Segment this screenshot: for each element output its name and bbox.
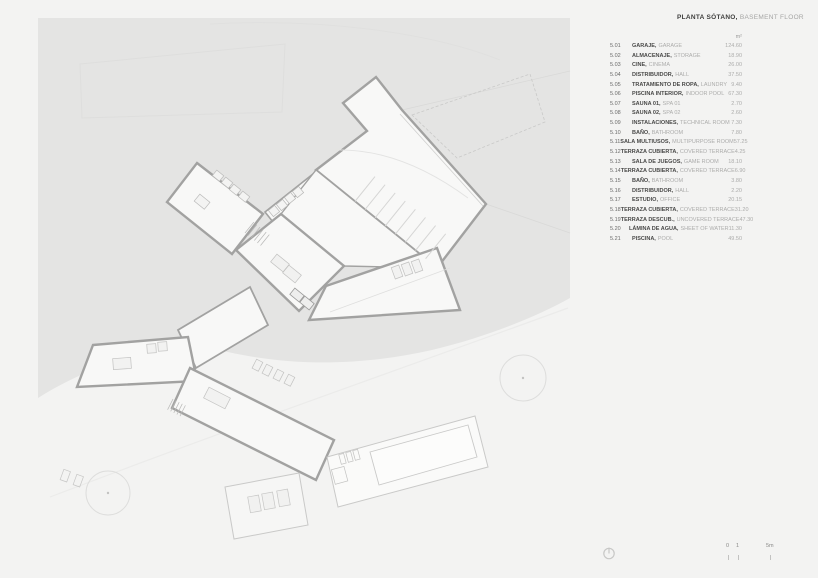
legend-row: 5.09 INSTALACIONES, TECHNICAL ROOM 7.30 <box>610 119 742 129</box>
legend-row: 5.21 PISCINA, POOL 49.50 <box>610 235 742 245</box>
legend-row: 5.01 GARAJE, GARAGE 124.60 <box>610 42 742 52</box>
room-name-en: POOL <box>658 235 673 245</box>
games-wing <box>172 368 334 480</box>
room-code: 5.01 <box>610 42 632 52</box>
room-area: 37.50 <box>728 71 742 81</box>
room-name-es: TRATAMIENTO DE ROPA, <box>632 81 699 91</box>
legend-row: 5.11 SALA MULTIUSOS, MULTIPURPOSE ROOM 5… <box>610 138 742 148</box>
legend-row: 5.10 BAÑO, BATHROOM 7.80 <box>610 129 742 139</box>
room-code: 5.07 <box>610 100 632 110</box>
tree-icon <box>500 355 546 401</box>
room-name-es: DISTRIBUIDOR, <box>632 71 673 81</box>
legend-row: 5.14 TERRAZA CUBIERTA, COVERED TERRACE 6… <box>610 167 742 177</box>
scale-label-1: 1 <box>736 543 739 549</box>
room-name-en: GARAGE <box>658 42 682 52</box>
room-area: 18.90 <box>728 52 742 62</box>
room-name-es: TERRAZA CUBIERTA, <box>621 148 678 158</box>
legend-row: 5.02 ALMACENAJE, STORAGE 18.90 <box>610 52 742 62</box>
room-name-en: HALL <box>675 71 689 81</box>
room-area: 20.15 <box>728 196 742 206</box>
scale-tick <box>738 555 739 560</box>
room-code: 5.10 <box>610 129 632 139</box>
room-area: 9.40 <box>731 81 742 91</box>
room-schedule: 5.01 GARAJE, GARAGE 124.60 5.02 ALMACENA… <box>610 42 742 244</box>
room-name-en: BATHROOM <box>652 177 683 187</box>
room-name-es: ALMACENAJE, <box>632 52 672 62</box>
room-name-en: OFFICE <box>660 196 680 206</box>
room-name-es: PISCINA, <box>632 235 656 245</box>
room-name-en: INDOOR POOL <box>685 90 724 100</box>
room-code: 5.13 <box>610 158 632 168</box>
room-name-en: COVERED TERRACE <box>680 206 735 216</box>
room-code: 5.15 <box>610 177 632 187</box>
studio-wing <box>77 337 197 387</box>
room-area: 11.30 <box>729 225 742 235</box>
title-spanish: PLANTA SÓTANO, <box>677 14 738 21</box>
room-area: 47.30 <box>739 216 753 226</box>
room-name-en: TECHNICAL ROOM <box>680 119 730 129</box>
room-name-es: SALA DE JUEGOS, <box>632 158 682 168</box>
room-code: 5.16 <box>610 187 632 197</box>
room-name-en: COVERED TERRACE <box>680 167 735 177</box>
room-name-en: HALL <box>675 187 689 197</box>
room-code: 5.09 <box>610 119 632 129</box>
room-name-es: PISCINA INTERIOR, <box>632 90 683 100</box>
room-name-en: STORAGE <box>674 52 701 62</box>
room-code: 5.08 <box>610 109 632 119</box>
room-area: 18.10 <box>728 158 742 168</box>
room-code: 5.17 <box>610 196 632 206</box>
sheet-title: PLANTA SÓTANO, BASEMENT FLOOR <box>677 14 804 21</box>
room-name-es: ESTUDIO, <box>632 196 658 206</box>
loungers <box>60 469 83 487</box>
room-name-es: BAÑO, <box>632 129 650 139</box>
room-area: 4.25 <box>735 148 746 158</box>
room-name-es: SALA MULTIUSOS, <box>620 138 670 148</box>
room-area: 2.20 <box>731 187 742 197</box>
room-name-en: GAME ROOM <box>684 158 719 168</box>
scale-label-0: 0 <box>726 543 729 549</box>
room-code: 5.14 <box>610 167 621 177</box>
room-area: 7.30 <box>731 119 742 129</box>
room-name-en: LAUNDRY <box>701 81 727 91</box>
room-name-en: UNCOVERED TERRACE <box>677 216 740 226</box>
legend-row: 5.06 PISCINA INTERIOR, INDOOR POOL 67.30 <box>610 90 742 100</box>
title-english: BASEMENT FLOOR <box>740 14 804 21</box>
legend-row: 5.19 TERRAZA DESCUB., UNCOVERED TERRACE … <box>610 216 742 226</box>
room-code: 5.12 <box>610 148 621 158</box>
room-area: 67.30 <box>728 90 742 100</box>
tree-icon <box>86 471 130 515</box>
room-code: 5.04 <box>610 71 632 81</box>
room-name-es: TERRAZA CUBIERTA, <box>621 206 678 216</box>
room-name-es: DISTRIBUIDOR, <box>632 187 673 197</box>
room-code: 5.19 <box>610 216 621 226</box>
drawing-sheet: PLANTA SÓTANO, BASEMENT FLOOR m² 5.01 GA… <box>0 0 818 578</box>
room-name-en: SPA 01 <box>663 100 681 110</box>
covered-terrace <box>225 473 308 539</box>
room-name-en: COVERED TERRACE <box>680 148 735 158</box>
room-area: 3.80 <box>731 177 742 187</box>
room-area: 49.50 <box>728 235 742 245</box>
unit-header: m² <box>610 34 742 40</box>
legend-row: 5.20 LÁMINA DE AGUA, SHEET OF WATER 11.3… <box>610 225 742 235</box>
legend-row: 5.04 DISTRIBUIDOR, HALL 37.50 <box>610 71 742 81</box>
room-code: 5.11 <box>610 138 620 148</box>
room-name-es: CINE, <box>632 61 647 71</box>
room-code: 5.18 <box>610 206 621 216</box>
room-area: 2.70 <box>731 100 742 110</box>
legend-row: 5.15 BAÑO, BATHROOM 3.80 <box>610 177 742 187</box>
room-area: 2.60 <box>731 109 742 119</box>
room-area: 26.00 <box>728 61 742 71</box>
room-name-es: BAÑO, <box>632 177 650 187</box>
scale-tick <box>770 555 771 560</box>
room-code: 5.02 <box>610 52 632 62</box>
room-name-en: BATHROOM <box>652 129 683 139</box>
room-area: 6.90 <box>735 167 746 177</box>
legend-row: 5.08 SAUNA 02, SPA 02 2.60 <box>610 109 742 119</box>
room-code: 5.20 <box>610 225 629 235</box>
room-name-es: TERRAZA DESCUB., <box>621 216 675 226</box>
room-area: 57.25 <box>734 138 748 148</box>
room-name-es: TERRAZA CUBIERTA, <box>621 167 678 177</box>
room-area: 7.80 <box>731 129 742 139</box>
legend-row: 5.12 TERRAZA CUBIERTA, COVERED TERRACE 4… <box>610 148 742 158</box>
room-name-en: MULTIPURPOSE ROOM <box>672 138 734 148</box>
room-name-es: INSTALACIONES, <box>632 119 678 129</box>
legend-row: 5.17 ESTUDIO, OFFICE 20.15 <box>610 196 742 206</box>
scale-label-5m: 5m <box>766 543 774 549</box>
room-area: 124.60 <box>725 42 742 52</box>
room-name-en: SHEET OF WATER <box>680 225 728 235</box>
legend-row: 5.13 SALA DE JUEGOS, GAME ROOM 18.10 <box>610 158 742 168</box>
scale-tick <box>728 555 729 560</box>
room-name-es: LÁMINA DE AGUA, <box>629 225 678 235</box>
legend-row: 5.07 SAUNA 01, SPA 01 2.70 <box>610 100 742 110</box>
room-code: 5.21 <box>610 235 632 245</box>
legend-row: 5.18 TERRAZA CUBIERTA, COVERED TERRACE 3… <box>610 206 742 216</box>
legend-row: 5.05 TRATAMIENTO DE ROPA, LAUNDRY 9.40 <box>610 81 742 91</box>
room-code: 5.03 <box>610 61 632 71</box>
room-name-es: SAUNA 02, <box>632 109 661 119</box>
room-code: 5.05 <box>610 81 632 91</box>
room-name-es: SAUNA 01, <box>632 100 661 110</box>
room-name-en: SPA 02 <box>663 109 681 119</box>
room-name-es: GARAJE, <box>632 42 656 52</box>
pool-complex <box>327 416 488 507</box>
power-icon <box>601 545 617 561</box>
room-code: 5.06 <box>610 90 632 100</box>
room-name-en: CINEMA <box>649 61 670 71</box>
legend-row: 5.16 DISTRIBUIDOR, HALL 2.20 <box>610 187 742 197</box>
legend-row: 5.03 CINE, CINEMA 26.00 <box>610 61 742 71</box>
room-area: 31.20 <box>735 206 749 216</box>
